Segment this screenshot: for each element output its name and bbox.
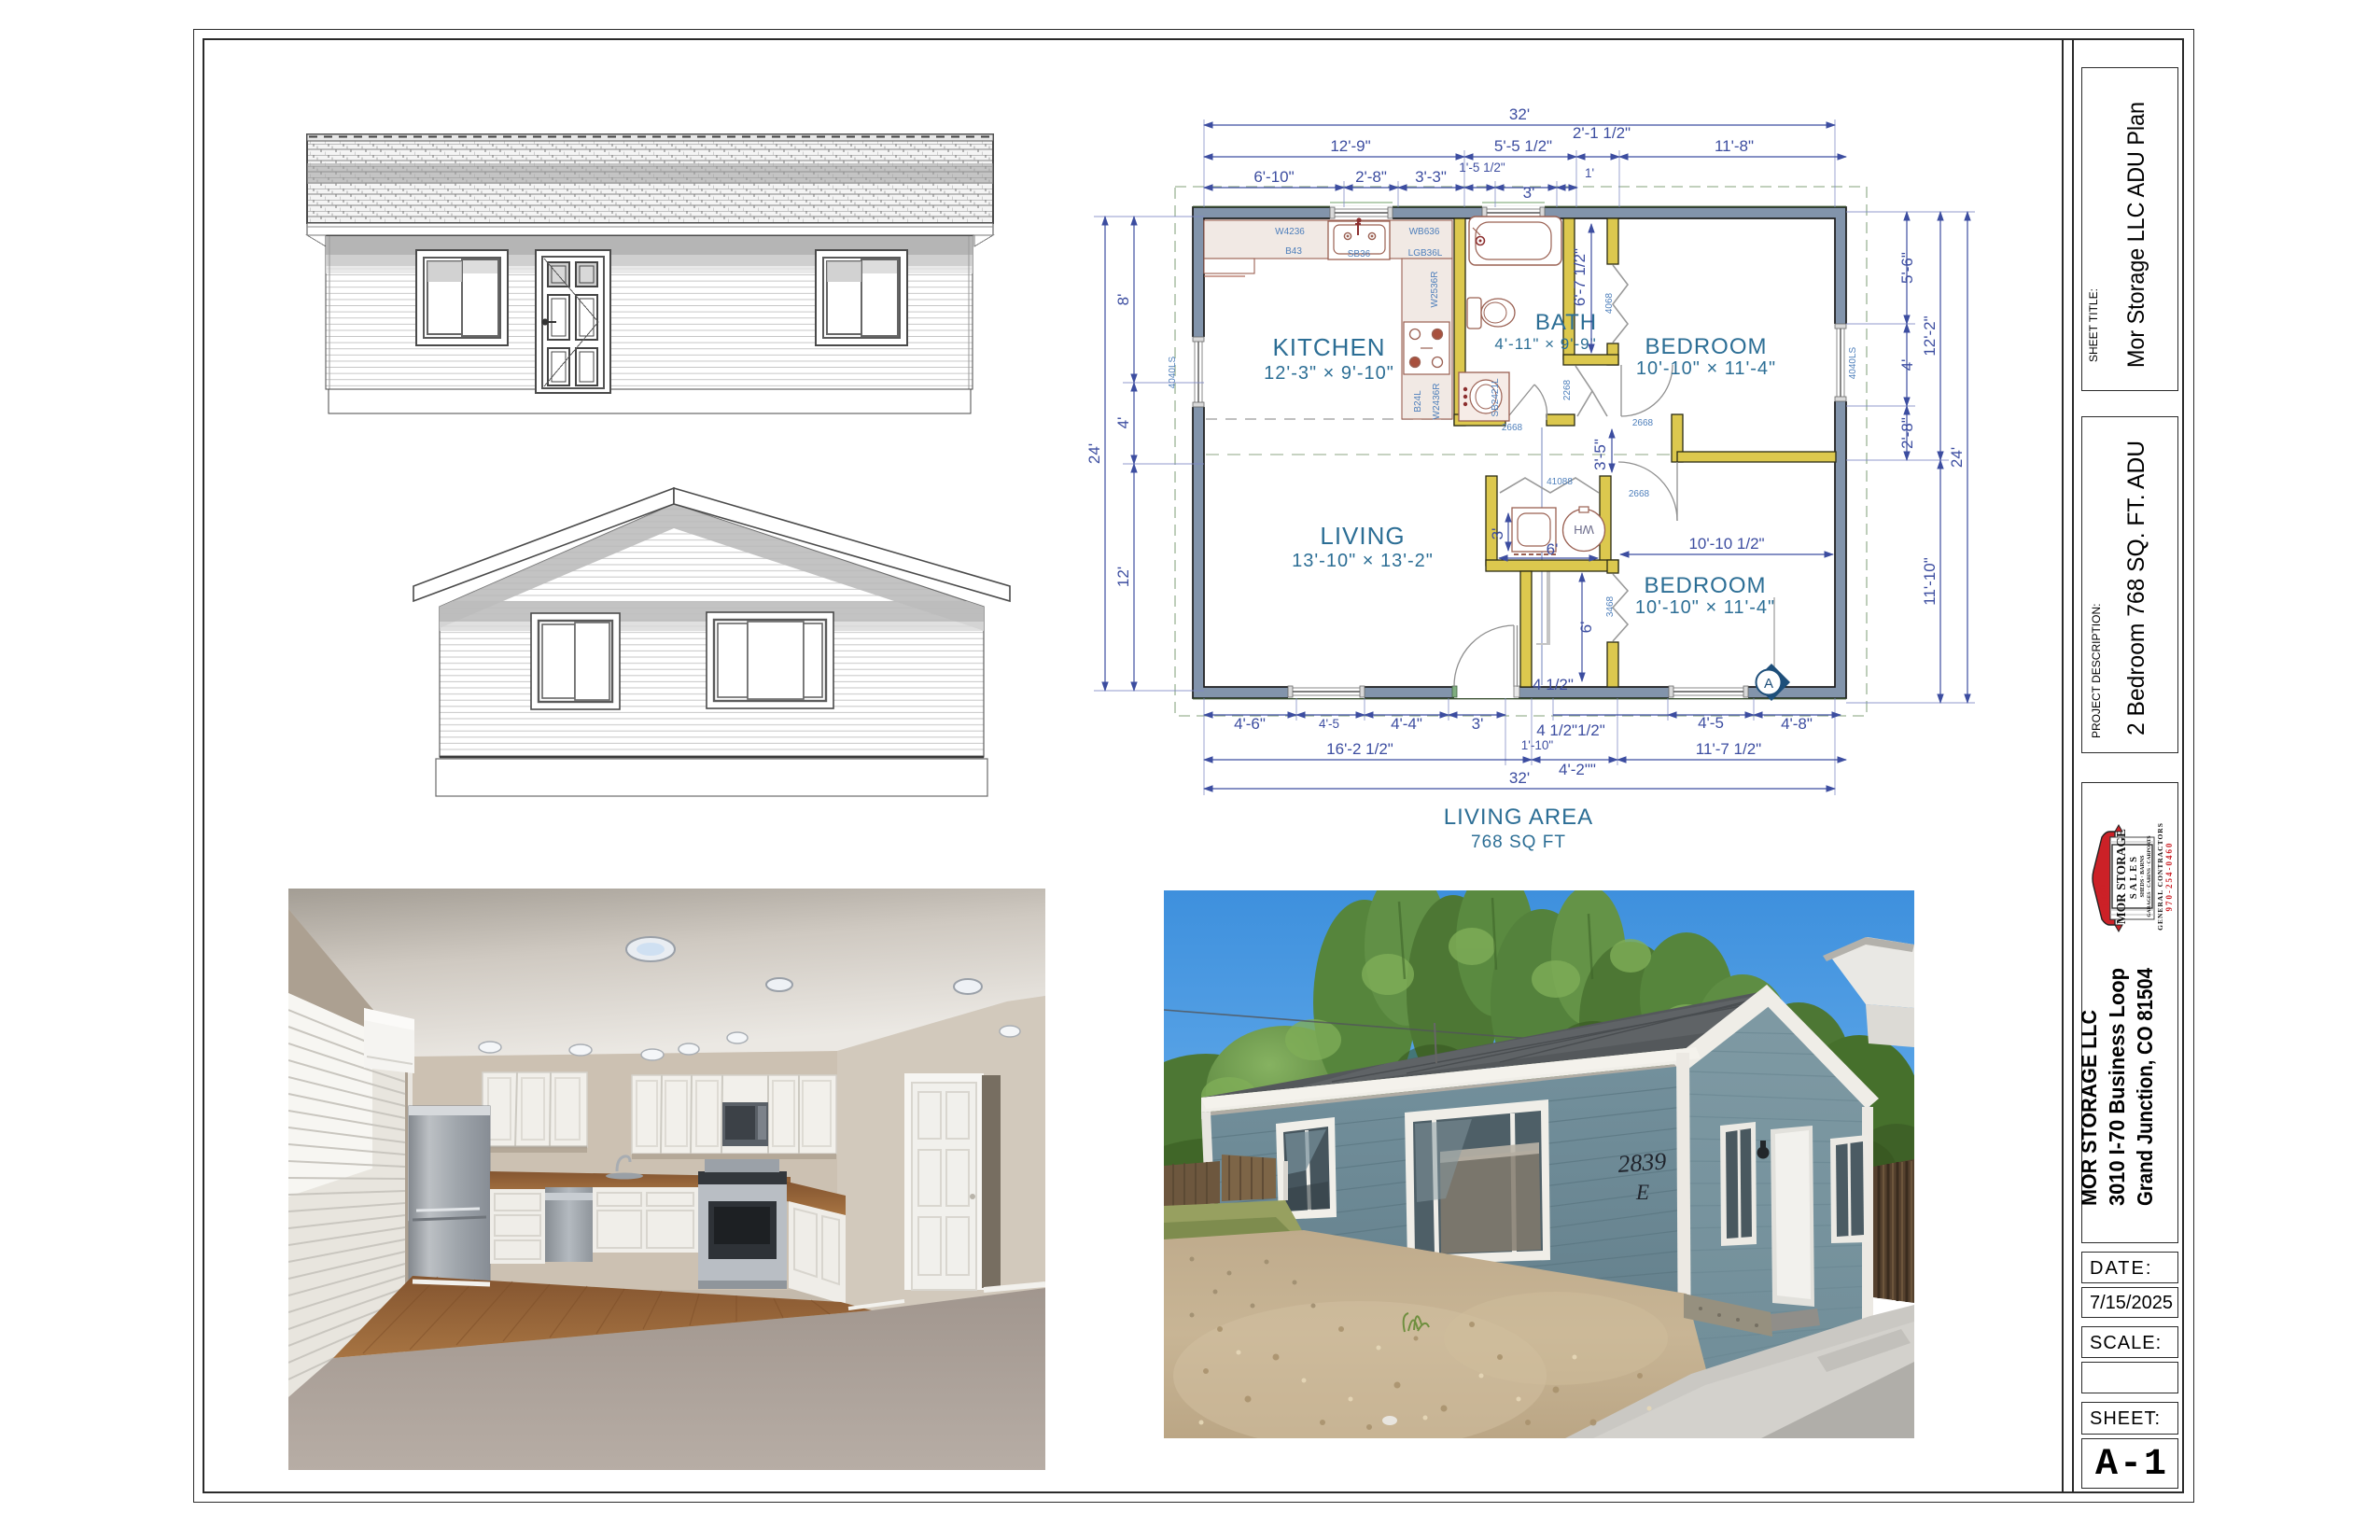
svg-text:32': 32' [1509, 769, 1530, 787]
svg-text:LIVING: LIVING [1320, 522, 1405, 550]
svg-text:4'-5: 4'-5 [1698, 714, 1724, 732]
svg-text:1'-10": 1'-10" [1521, 738, 1554, 752]
svg-text:GARAGES · CABINS · CARPORTS: GARAGES · CABINS · CARPORTS [2147, 835, 2152, 917]
svg-text:16'-2 1/2": 16'-2 1/2" [1326, 740, 1393, 758]
svg-text:3': 3' [1489, 528, 1506, 540]
svg-text:W2436R: W2436R [1432, 384, 1442, 420]
svg-text:24': 24' [1085, 443, 1103, 464]
svg-text:3'-3": 3'-3" [1415, 168, 1447, 186]
svg-text:32': 32' [1509, 105, 1530, 123]
svg-text:10'-10 1/2": 10'-10 1/2" [1688, 535, 1764, 553]
svg-text:768 SQ FT: 768 SQ FT [1471, 833, 1566, 852]
svg-text:3': 3' [1523, 184, 1535, 202]
svg-text:2'-8": 2'-8" [1898, 417, 1916, 449]
svg-text:24': 24' [1948, 447, 1966, 468]
svg-text:11'-10": 11'-10" [1921, 557, 1939, 606]
svg-text:41088: 41088 [1547, 477, 1573, 487]
svg-text:B24L: B24L [1413, 390, 1423, 413]
svg-text:3010 I-70 Business Loop: 3010 I-70 Business Loop [2105, 968, 2129, 1206]
svg-text:13'-10" × 13'-2": 13'-10" × 13'-2" [1292, 551, 1434, 571]
svg-text:SB36: SB36 [1348, 249, 1371, 259]
svg-text:970-254-0460: 970-254-0460 [2164, 842, 2174, 912]
svg-text:2668: 2668 [1632, 418, 1654, 428]
svg-text:SHEET TITLE:: SHEET TITLE: [2087, 288, 2100, 362]
svg-text:4'-4": 4'-4" [1391, 715, 1422, 733]
svg-text:A: A [1764, 676, 1773, 692]
svg-text:4': 4' [1114, 417, 1132, 429]
svg-text:12'-9": 12'-9" [1330, 137, 1370, 155]
svg-text:LIVING AREA: LIVING AREA [1444, 805, 1593, 830]
svg-text:6': 6' [1577, 622, 1595, 634]
svg-text:8': 8' [1114, 294, 1132, 306]
svg-text:2668: 2668 [1502, 423, 1523, 433]
svg-text:E: E [1635, 1181, 1649, 1204]
svg-text:LGB36L: LGB36L [1408, 248, 1443, 259]
svg-text:1': 1' [1585, 166, 1594, 180]
svg-text:11'-8": 11'-8" [1715, 137, 1754, 155]
svg-text:4 1/2": 4 1/2" [1533, 676, 1574, 693]
svg-text:3468: 3468 [1605, 595, 1616, 617]
svg-text:2839: 2839 [1617, 1147, 1667, 1178]
svg-text:1'-5 1/2": 1'-5 1/2" [1459, 161, 1505, 175]
svg-text:4040LS: 4040LS [1848, 346, 1858, 379]
svg-text:2668: 2668 [1629, 489, 1650, 499]
svg-text:4068: 4068 [1604, 292, 1615, 314]
svg-text:3': 3' [1472, 715, 1484, 733]
svg-text:4'-8": 4'-8" [1781, 715, 1813, 733]
svg-text:B43: B43 [1285, 246, 1302, 257]
svg-text:4'-5: 4'-5 [1319, 717, 1339, 731]
svg-text:4'-11" × 9'-9": 4'-11" × 9'-9" [1494, 335, 1596, 353]
svg-text:SB2421L: SB2421L [1491, 378, 1501, 417]
svg-text:Mor Storage LLC ADU Plan: Mor Storage LLC ADU Plan [2123, 102, 2149, 368]
svg-text:KITCHEN: KITCHEN [1272, 333, 1385, 361]
svg-text:12'-2": 12'-2" [1921, 315, 1939, 356]
svg-text:6'-7 1/2": 6'-7 1/2" [1571, 248, 1589, 306]
svg-text:BEDROOM: BEDROOM [1645, 334, 1767, 359]
svg-text:W4236: W4236 [1275, 227, 1305, 237]
svg-text:WB636: WB636 [1409, 227, 1440, 237]
svg-text:6': 6' [1547, 540, 1559, 558]
svg-text:4'-6": 4'-6" [1234, 715, 1266, 733]
svg-text:2268: 2268 [1562, 379, 1573, 400]
svg-text:2 Bedroom 768 SQ. FT. ADU: 2 Bedroom 768 SQ. FT. ADU [2123, 441, 2149, 735]
svg-text:WH: WH [1574, 523, 1594, 537]
svg-text:SALES: SALES [2129, 854, 2139, 899]
svg-text:MOR STORAGE LLC: MOR STORAGE LLC [2081, 1010, 2101, 1206]
svg-text:W2536R: W2536R [1430, 272, 1440, 308]
svg-text:4'-2"": 4'-2"" [1559, 761, 1596, 778]
svg-text:2'-1 1/2": 2'-1 1/2" [1573, 124, 1631, 142]
svg-text:4': 4' [1898, 359, 1916, 371]
svg-text:10'-10" × 11'-4": 10'-10" × 11'-4" [1635, 597, 1775, 618]
svg-text:PROJECT DESCRIPTION:: PROJECT DESCRIPTION: [2090, 604, 2103, 738]
svg-text:10'-10" × 11'-4": 10'-10" × 11'-4" [1636, 358, 1776, 379]
svg-text:BATH: BATH [1535, 310, 1597, 335]
svg-text:5'-6": 5'-6" [1898, 252, 1916, 284]
svg-text:12'-3" × 9'-10": 12'-3" × 9'-10" [1264, 363, 1394, 384]
svg-text:6'-10": 6'-10" [1253, 168, 1294, 186]
svg-text:12': 12' [1114, 567, 1132, 587]
svg-text:3'-5": 3'-5" [1591, 439, 1609, 470]
svg-text:4040LS: 4040LS [1168, 356, 1178, 388]
svg-text:MOR STORAGE: MOR STORAGE [2114, 829, 2128, 924]
svg-text:4 1/2"1/2": 4 1/2"1/2" [1536, 721, 1605, 739]
svg-text:Grand Junction, CO 81504: Grand Junction, CO 81504 [2133, 968, 2157, 1206]
svg-text:2'-8": 2'-8" [1355, 168, 1387, 186]
svg-text:11'-7 1/2": 11'-7 1/2" [1696, 740, 1761, 758]
svg-text:5'-5 1/2": 5'-5 1/2" [1494, 137, 1552, 155]
svg-text:SHEDS · BARNS: SHEDS · BARNS [2140, 855, 2146, 898]
svg-text:GENERAL CONTRACTORS: GENERAL CONTRACTORS [2156, 822, 2164, 931]
svg-text:BEDROOM: BEDROOM [1644, 573, 1766, 598]
